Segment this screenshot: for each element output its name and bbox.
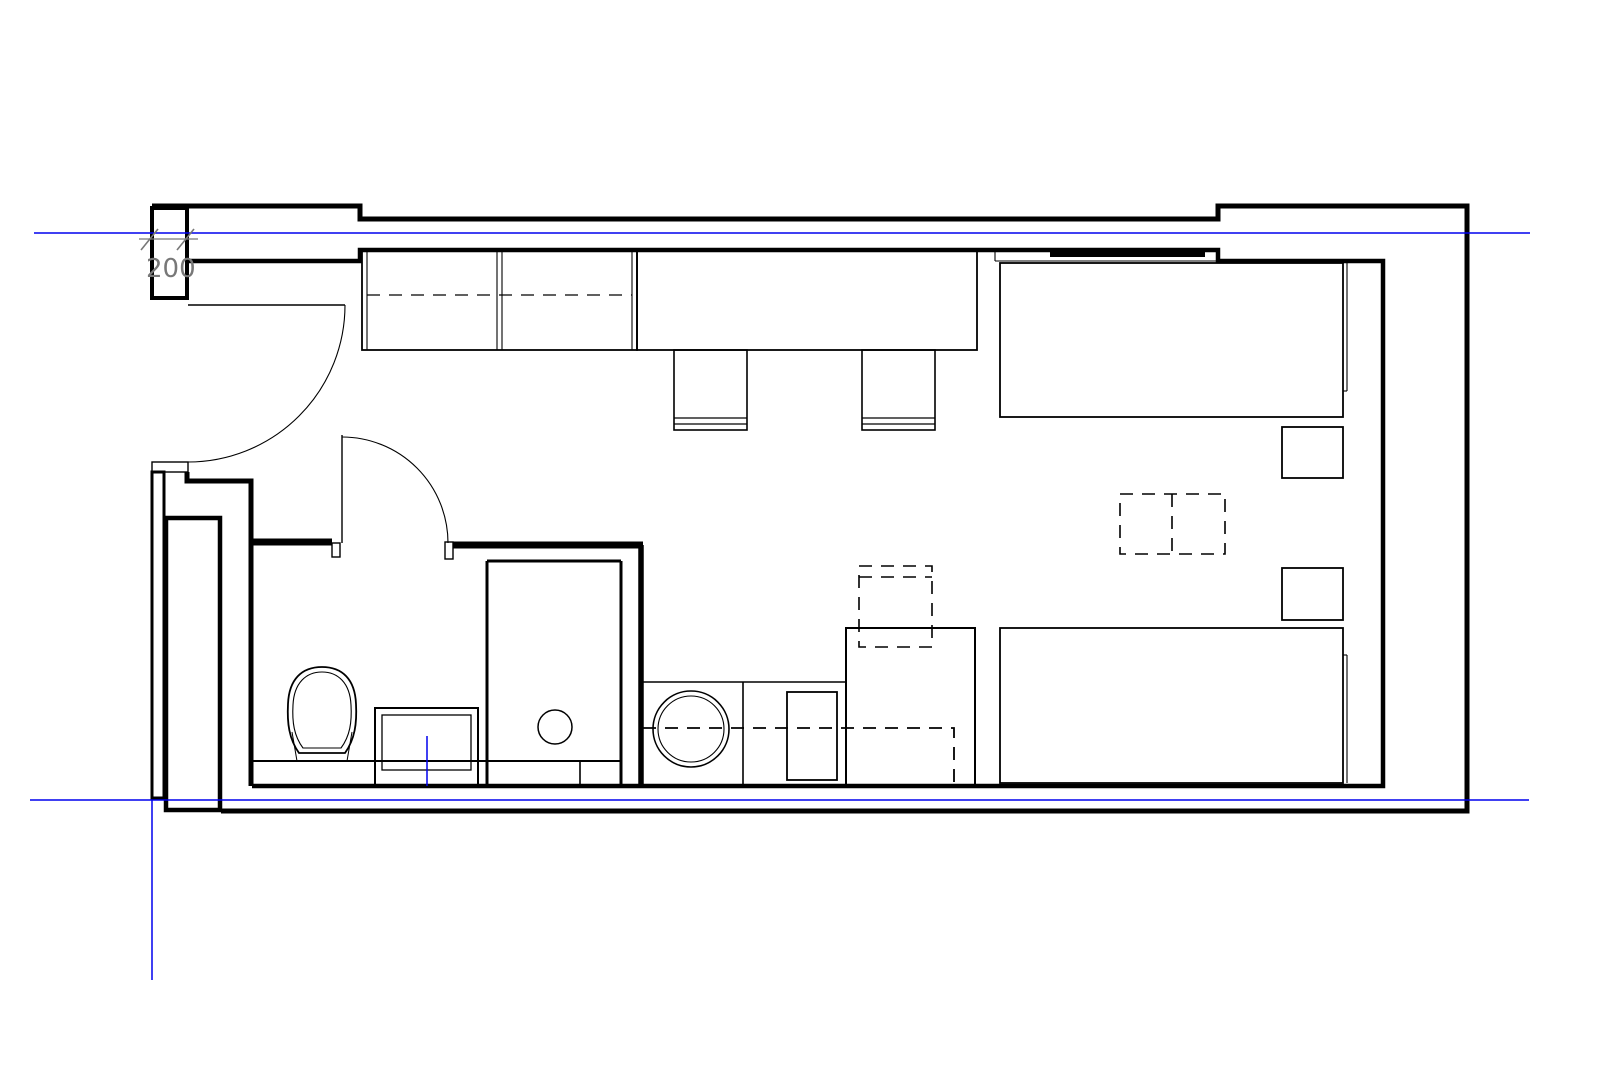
shower-drain xyxy=(538,710,572,744)
kitchen-tall-cabinet xyxy=(846,628,975,786)
nightstand-upper xyxy=(1282,427,1343,478)
bed-bottom xyxy=(1000,628,1343,783)
bath-door-jamb-left xyxy=(332,543,340,557)
dim-label: 200 xyxy=(146,254,196,284)
bath-door-jamb-right xyxy=(445,542,453,559)
nightstand-lower xyxy=(1282,568,1343,620)
kitchen-sink xyxy=(787,692,837,780)
washer-door-inner xyxy=(658,696,724,762)
kitchen-counter-hidden xyxy=(643,728,954,785)
entry-door-swing xyxy=(188,305,345,462)
toilet-inner xyxy=(293,672,351,748)
headboard-bar xyxy=(1050,252,1205,257)
bath-door-swing xyxy=(342,437,448,543)
floor-plan-page: 200 xyxy=(0,0,1615,1077)
entry-pier xyxy=(152,208,187,298)
outer-wall xyxy=(152,206,1467,811)
wardrobe xyxy=(362,250,637,350)
bed-top xyxy=(1000,263,1343,417)
desk xyxy=(637,250,977,350)
shaft-column xyxy=(166,518,220,810)
floor-plan-canvas: 200 xyxy=(0,0,1615,1077)
washer-door-outer xyxy=(653,691,729,767)
wall-cabinet-hidden xyxy=(859,566,932,647)
left-wall-lower xyxy=(152,472,164,798)
